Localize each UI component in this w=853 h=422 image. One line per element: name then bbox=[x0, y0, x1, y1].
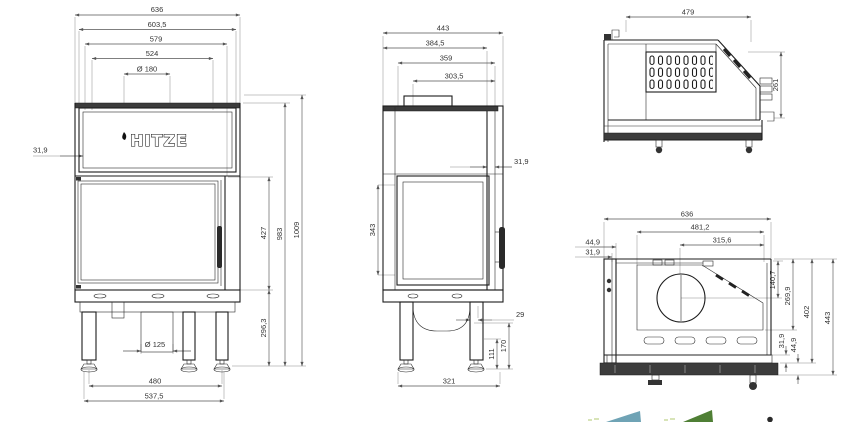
dark-dot bbox=[767, 417, 773, 422]
dim-front-total-width: 636 bbox=[151, 5, 164, 14]
dim-plan-total-width: 636 bbox=[681, 210, 694, 219]
teal-shape bbox=[606, 411, 641, 422]
plan-clip bbox=[703, 261, 713, 266]
side-top-plate bbox=[383, 106, 498, 111]
front-vent-slot bbox=[152, 294, 164, 298]
pale-dash bbox=[588, 419, 592, 421]
section-base-band bbox=[604, 133, 762, 140]
dim-side-frame-inset: 31,9 bbox=[514, 157, 529, 166]
front-leg bbox=[183, 312, 195, 360]
front-view: 636 603,5 579 524 Ø 180 31,9 427 983 100… bbox=[33, 5, 306, 401]
side-base-plate bbox=[383, 290, 503, 302]
dim-plan-body-depth: 402 bbox=[802, 306, 811, 319]
plan-body bbox=[600, 259, 778, 390]
side-glass-frame bbox=[397, 176, 489, 285]
dim-side-glass-height: 343 bbox=[368, 224, 377, 237]
dim-plan-rear-inset-inner: 31,9 bbox=[585, 248, 600, 257]
front-vent-slot bbox=[94, 294, 106, 298]
flame-icon bbox=[122, 132, 126, 140]
section-top-bracket bbox=[612, 30, 619, 40]
pale-dash bbox=[670, 418, 675, 420]
dim-side-base-clearance: 170 bbox=[499, 340, 508, 353]
section-rear-bracket bbox=[760, 112, 774, 121]
side-top-box bbox=[404, 96, 452, 106]
side-leg-brace bbox=[413, 302, 470, 331]
plan-view: 636 481,2 315,6 44,9 31,9 140,7 269,9 40… bbox=[575, 210, 837, 391]
dim-plan-total-depth: 443 bbox=[823, 312, 832, 325]
dim-plan-rear-inset-outer: 44,9 bbox=[585, 238, 600, 247]
side-feet bbox=[398, 360, 484, 372]
plan-vent bbox=[675, 337, 695, 344]
dim-front-top-width: 603,5 bbox=[148, 20, 167, 29]
side-extension-lines bbox=[378, 36, 514, 384]
side-door-handle bbox=[499, 227, 505, 269]
pale-dash bbox=[594, 418, 599, 420]
dim-front-body-height: 983 bbox=[275, 228, 284, 241]
drawing-canvas: 636 603,5 579 524 Ø 180 31,9 427 983 100… bbox=[0, 0, 853, 422]
plan-feet bbox=[648, 375, 757, 390]
front-leg bbox=[216, 312, 228, 360]
side-leg bbox=[470, 302, 483, 360]
dim-side-top-depth: 384,5 bbox=[426, 39, 445, 48]
dim-front-feet-spacing: 480 bbox=[149, 377, 162, 386]
front-door-glass bbox=[78, 181, 218, 283]
plan-clip bbox=[665, 260, 674, 265]
dim-section-top-width: 479 bbox=[682, 8, 695, 17]
footer-graphics bbox=[588, 410, 773, 422]
dim-front-glass-height: 427 bbox=[259, 227, 268, 240]
plan-dimension-lines bbox=[590, 219, 833, 384]
plan-rear-strip bbox=[604, 259, 616, 363]
front-feet bbox=[81, 360, 230, 372]
plan-firebox-chamber bbox=[637, 265, 763, 330]
plan-vent bbox=[706, 337, 726, 344]
front-leg bbox=[82, 312, 96, 360]
dim-side-glass-depth: 303,5 bbox=[445, 72, 464, 81]
dim-front-base-height: 296,3 bbox=[259, 319, 268, 338]
side-leg bbox=[400, 302, 413, 360]
side-glass bbox=[403, 182, 483, 279]
front-vent-slot bbox=[207, 294, 219, 298]
pale-dash bbox=[664, 419, 668, 421]
green-shape bbox=[683, 410, 713, 422]
dim-plan-inner-width: 481,2 bbox=[691, 223, 710, 232]
technical-drawing: 636 603,5 579 524 Ø 180 31,9 427 983 100… bbox=[0, 0, 853, 422]
plan-front-frame-outer bbox=[600, 363, 778, 375]
dim-plan-flue-depth: 140,7 bbox=[768, 271, 777, 290]
dim-section-outlet-height: 261 bbox=[771, 79, 780, 92]
plan-vent bbox=[644, 337, 664, 344]
dim-plan-front-inset-inner: 31,9 bbox=[777, 334, 786, 349]
plan-vent bbox=[737, 337, 757, 344]
dim-front-panel-inset: 31,9 bbox=[33, 146, 48, 155]
dim-side-frame-depth: 359 bbox=[440, 54, 453, 63]
dim-front-total-height: 1009 bbox=[292, 222, 301, 239]
dim-plan-front-inset-outer: 44,9 bbox=[789, 338, 798, 353]
plan-front-frame-inner bbox=[607, 355, 772, 363]
dim-side-total-depth: 443 bbox=[437, 24, 450, 33]
plan-bolt bbox=[607, 279, 611, 283]
plan-clip bbox=[653, 260, 662, 265]
hitze-logo: HITZE bbox=[130, 131, 188, 150]
front-door-bolt-top bbox=[76, 177, 81, 181]
dim-front-glass-width: 524 bbox=[146, 49, 159, 58]
dim-front-flue-diameter: Ø 180 bbox=[137, 65, 157, 74]
dim-side-foot-height: 111 bbox=[487, 348, 496, 359]
side-view: 443 384,5 359 303,5 31,9 343 29 111 170 … bbox=[368, 24, 529, 387]
section-body bbox=[604, 30, 774, 153]
dim-side-leg-offset: 29 bbox=[516, 310, 524, 319]
front-body: HITZE bbox=[75, 103, 240, 372]
dim-front-base-width: 537,5 bbox=[145, 392, 164, 401]
front-door-bolt-bottom bbox=[76, 285, 81, 289]
front-top-plate bbox=[75, 103, 240, 108]
section-hatch-block bbox=[604, 34, 611, 40]
section-view: 479 261 bbox=[604, 8, 785, 154]
plan-bolt bbox=[607, 288, 611, 292]
dim-front-frame-width: 579 bbox=[150, 35, 163, 44]
dim-side-feet-spacing: 321 bbox=[443, 377, 456, 386]
side-vent-slot bbox=[408, 294, 418, 298]
dim-front-intake-diameter: Ø 125 bbox=[145, 340, 165, 349]
dim-plan-flue-offset: 315,6 bbox=[713, 236, 732, 245]
front-base-plate bbox=[75, 290, 240, 302]
side-vent-slot bbox=[452, 294, 462, 298]
section-corner-diagonal bbox=[718, 40, 760, 86]
front-door-handle bbox=[217, 226, 222, 268]
side-body bbox=[383, 96, 505, 372]
section-feet bbox=[656, 140, 752, 153]
dim-plan-chamber-depth: 269,9 bbox=[783, 287, 792, 306]
